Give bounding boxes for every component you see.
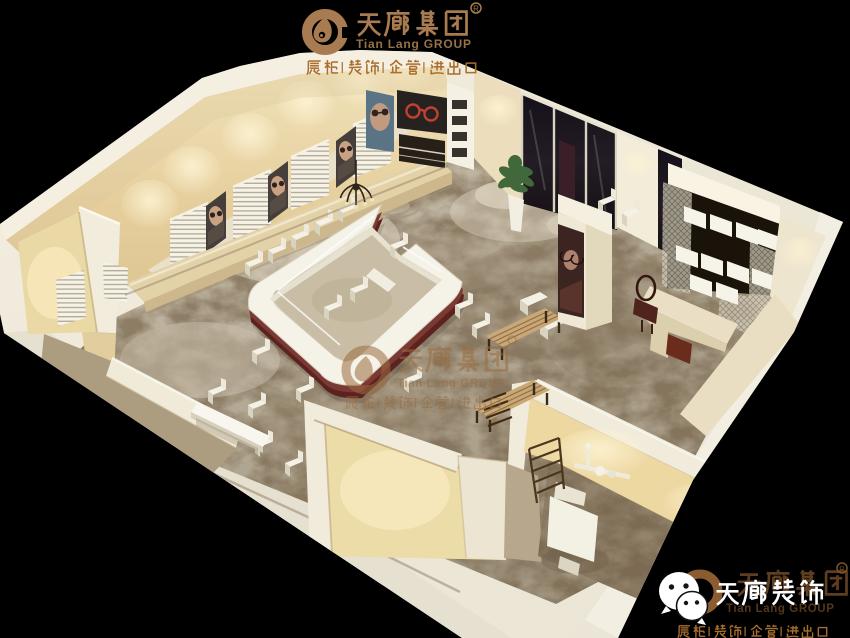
svg-text:Tian Lang GROUP: Tian Lang GROUP: [397, 378, 505, 390]
svg-text:R: R: [473, 5, 479, 14]
svg-text:Tian Lang GROUP: Tian Lang GROUP: [356, 37, 472, 51]
svg-text:R: R: [839, 565, 845, 574]
